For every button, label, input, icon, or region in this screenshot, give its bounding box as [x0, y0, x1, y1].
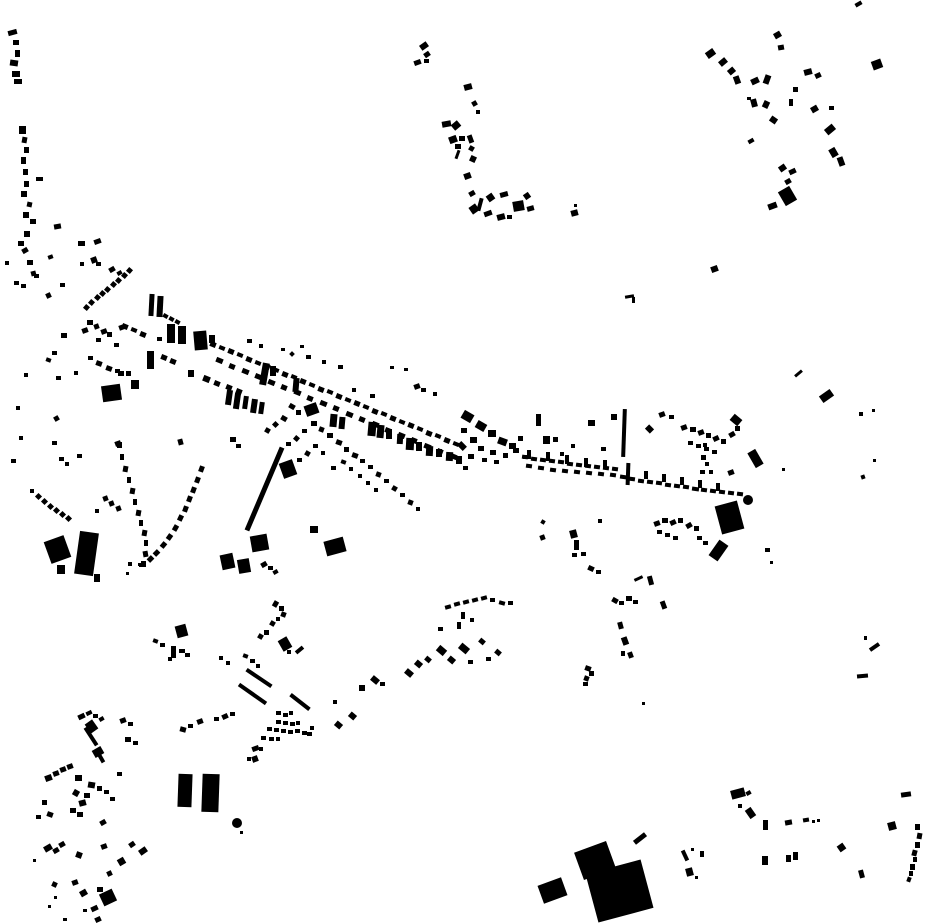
building-footprint [463, 466, 468, 470]
building-footprint [619, 601, 624, 605]
building-footprint [762, 100, 770, 109]
building-footprint [349, 467, 353, 471]
building-footprint [128, 722, 133, 726]
building-footprint [688, 441, 693, 445]
building-footprint [22, 137, 28, 144]
building-footprint [735, 426, 740, 431]
building-footprint [47, 254, 53, 259]
building-footprint [178, 326, 186, 344]
building-footprint [486, 193, 496, 203]
building-footprint [21, 247, 29, 254]
building-footprint [737, 492, 743, 497]
building-footprint [574, 540, 579, 550]
building-footprint [95, 509, 99, 513]
building-footprint [290, 722, 295, 726]
building-footprint [456, 456, 462, 464]
building-footprint [96, 338, 101, 342]
building-footprint [765, 548, 770, 552]
building-footprint [814, 72, 822, 79]
building-footprint [169, 358, 176, 365]
building-footprint [139, 520, 143, 526]
building-footprint [19, 436, 23, 440]
building-footprint [560, 452, 564, 456]
building-footprint [57, 565, 65, 574]
building-footprint [696, 444, 701, 448]
building-footprint [250, 534, 270, 553]
building-footprint [338, 365, 343, 369]
building-footprint [869, 642, 880, 652]
building-footprint [513, 448, 519, 453]
building-footprint [43, 843, 53, 852]
building-footprint [214, 717, 219, 721]
building-footprint [133, 741, 138, 745]
building-footprint [83, 304, 90, 311]
building-footprint [538, 877, 568, 903]
building-footprint [215, 357, 223, 364]
building-footprint [226, 661, 230, 665]
building-footprint [196, 718, 203, 725]
building-footprint [296, 410, 301, 415]
building-footprint [864, 636, 867, 640]
building-footprint [90, 905, 98, 912]
building-footprint [370, 675, 380, 685]
building-footprint [784, 178, 792, 185]
building-footprint [188, 370, 194, 377]
building-footprint [71, 879, 78, 886]
building-footprint [19, 126, 26, 134]
building-footprint [335, 393, 342, 400]
building-footprint [351, 452, 358, 459]
building-footprint [24, 181, 29, 187]
building-footprint [276, 737, 280, 741]
building-footprint [598, 519, 602, 523]
building-footprint [36, 815, 41, 819]
building-footprint [750, 98, 758, 107]
building-footprint [97, 887, 103, 892]
building-footprint [376, 425, 384, 439]
building-footprint [42, 800, 47, 805]
building-footprint [859, 412, 863, 416]
building-footprint [335, 439, 342, 446]
building-footprint [23, 212, 29, 218]
building-footprint [321, 451, 325, 455]
building-footprint [166, 533, 174, 541]
building-footprint [873, 459, 876, 462]
building-footprint [70, 808, 76, 813]
building-footprint [695, 876, 698, 879]
building-footprint [540, 519, 545, 524]
building-footprint [359, 685, 365, 691]
building-footprint [698, 480, 702, 488]
building-footprint [872, 409, 875, 412]
building-footprint [572, 553, 577, 557]
building-footprint [77, 713, 85, 720]
building-footprint [198, 465, 205, 472]
building-footprint [703, 443, 707, 447]
building-footprint [27, 260, 33, 265]
building-footprint [478, 446, 484, 451]
building-footprint [626, 463, 631, 485]
building-footprint [268, 566, 273, 570]
building-footprint [23, 169, 28, 175]
building-footprint [295, 729, 300, 733]
building-footprint [160, 354, 167, 361]
building-footprint [854, 1, 862, 8]
building-footprint [293, 435, 300, 442]
building-footprint [598, 472, 604, 477]
building-footprint [261, 736, 266, 740]
building-footprint [917, 833, 923, 840]
building-footprint [139, 564, 142, 567]
building-footprint [54, 896, 57, 899]
building-footprint [96, 262, 101, 266]
building-footprint [77, 812, 83, 817]
building-footprint [80, 262, 84, 266]
building-footprint [733, 75, 741, 85]
building-footprint [423, 51, 431, 59]
building-footprint [306, 395, 313, 402]
building-footprint [565, 455, 569, 464]
building-footprint [391, 485, 398, 492]
building-footprint [538, 466, 544, 471]
building-footprint [360, 459, 365, 463]
building-footprint [690, 427, 696, 432]
building-footprint [16, 406, 20, 410]
building-footprint [236, 444, 241, 448]
building-footprint [634, 575, 643, 582]
building-footprint [117, 772, 122, 776]
building-footprint [915, 824, 920, 830]
building-footprint [126, 572, 129, 575]
building-footprint [27, 202, 33, 208]
building-footprint [130, 327, 137, 333]
building-footprint [34, 274, 39, 278]
building-footprint [910, 864, 915, 870]
building-footprint [461, 428, 467, 433]
building-footprint [344, 447, 349, 452]
building-footprint [416, 507, 420, 511]
building-footprint [812, 820, 815, 823]
building-footprint [276, 711, 281, 715]
building-footprint [250, 399, 258, 414]
building-footprint [496, 213, 505, 221]
building-footprint [52, 847, 60, 854]
building-footprint [296, 721, 300, 725]
building-footprint [497, 437, 508, 447]
building-footprint [669, 519, 677, 526]
building-footprint [93, 323, 99, 329]
building-footprint [569, 529, 578, 539]
building-footprint [331, 466, 336, 470]
building-footprint [329, 414, 337, 428]
building-footprint [638, 479, 644, 484]
building-footprint [182, 505, 189, 512]
building-footprint [318, 426, 324, 432]
building-footprint [611, 597, 619, 604]
building-footprint [611, 414, 617, 420]
building-footprint [264, 630, 269, 635]
building-footprint [100, 843, 107, 850]
building-footprint [114, 343, 119, 347]
building-footprint [662, 474, 666, 482]
building-footprint [340, 459, 346, 464]
building-footprint [230, 712, 235, 716]
building-footprint [747, 138, 754, 144]
building-footprint [18, 241, 24, 246]
building-footprint [773, 31, 782, 40]
building-footprint [584, 458, 588, 467]
building-footprint [472, 597, 479, 602]
building-footprint [179, 726, 186, 732]
building-footprint [310, 726, 314, 730]
building-footprint [703, 541, 708, 545]
building-footprint [237, 558, 251, 574]
building-footprint [148, 294, 154, 316]
building-footprint [442, 120, 452, 127]
building-footprint [45, 357, 51, 362]
building-footprint [446, 452, 453, 461]
building-footprint [527, 450, 531, 459]
building-footprint [470, 618, 474, 622]
building-footprint [769, 116, 778, 125]
building-footprint [153, 549, 161, 557]
building-footprint [461, 612, 465, 619]
building-footprint [539, 534, 545, 540]
building-footprint [727, 66, 736, 75]
building-footprint [289, 711, 293, 715]
building-footprint [459, 136, 465, 141]
building-footprint [685, 522, 693, 529]
building-footprint [348, 711, 357, 720]
building-footprint [8, 29, 18, 36]
building-footprint [712, 435, 720, 442]
building-footprint [778, 45, 785, 51]
building-footprint [728, 491, 734, 496]
building-footprint [258, 402, 265, 415]
building-footprint [705, 48, 716, 59]
building-footprint [332, 405, 339, 412]
building-footprint [589, 671, 594, 676]
building-footprint [747, 449, 763, 468]
building-footprint [30, 219, 36, 224]
building-footprint [721, 439, 726, 444]
building-footprint [174, 319, 180, 325]
building-footprint [307, 732, 312, 736]
building-footprint [526, 464, 532, 469]
building-footprint [490, 598, 495, 602]
building-footprint [250, 659, 255, 663]
building-footprint [85, 710, 92, 716]
building-footprint [400, 493, 405, 497]
building-footprint [523, 192, 531, 200]
building-footprint [308, 382, 315, 388]
building-footprint [470, 437, 477, 443]
building-footprint [829, 106, 834, 110]
building-footprint [48, 905, 51, 908]
building-footprint [59, 766, 66, 773]
building-footprint [700, 470, 705, 474]
building-footprint [310, 526, 318, 533]
building-footprint [344, 397, 351, 403]
building-footprint [371, 408, 378, 415]
building-footprint [61, 333, 67, 338]
building-footprint [272, 421, 279, 428]
building-footprint [131, 380, 139, 389]
building-footprint [157, 337, 162, 341]
building-footprint [289, 351, 295, 357]
building-footprint [673, 536, 678, 540]
building-footprint [63, 918, 67, 921]
building-footprint [788, 168, 796, 175]
building-footprint [177, 514, 184, 522]
building-footprint [136, 510, 142, 517]
building-footprint [709, 540, 729, 562]
building-footprint [345, 411, 353, 418]
building-footprint [121, 272, 128, 279]
building-footprint [669, 415, 674, 419]
building-footprint [610, 473, 616, 478]
building-footprint [421, 388, 426, 392]
building-footprint [457, 622, 461, 629]
building-footprint [280, 611, 286, 617]
building-footprint [302, 429, 307, 433]
building-footprint [617, 621, 624, 629]
building-footprint [793, 852, 798, 860]
building-footprint [99, 819, 107, 826]
building-footprint [218, 345, 225, 351]
building-footprint [238, 683, 267, 705]
building-footprint [499, 191, 508, 198]
building-footprint [334, 720, 343, 729]
building-footprint [327, 433, 333, 438]
building-footprint [128, 841, 136, 849]
building-footprint [353, 400, 360, 407]
building-footprint [84, 793, 90, 798]
building-footprint [283, 713, 288, 717]
building-footprint [323, 537, 346, 557]
building-footprint-map [0, 0, 930, 924]
building-footprint [292, 378, 299, 392]
building-footprint [413, 59, 421, 66]
building-footprint [201, 774, 219, 813]
building-footprint [160, 541, 168, 549]
building-footprint [375, 471, 381, 477]
building-footprint [115, 505, 121, 511]
building-footprint [469, 155, 477, 163]
building-footprint [24, 147, 29, 153]
building-footprint [78, 241, 85, 246]
building-footprint [419, 41, 429, 51]
building-footprint [416, 426, 423, 432]
building-footprint [227, 348, 234, 355]
building-footprint [12, 71, 20, 77]
building-footprint [41, 498, 48, 505]
building-footprint [88, 356, 93, 360]
building-footprint [762, 856, 768, 865]
building-footprint [367, 422, 376, 437]
building-footprint [424, 656, 432, 664]
building-footprint [257, 633, 264, 640]
building-footprint [475, 420, 488, 432]
building-footprint [259, 747, 263, 751]
building-footprint [447, 655, 456, 664]
building-footprint [887, 821, 897, 831]
building-footprint [778, 164, 787, 173]
building-footprint [507, 215, 512, 219]
building-footprint [177, 774, 192, 807]
building-footprint [553, 437, 558, 442]
building-footprint [413, 383, 420, 390]
building-footprint [259, 344, 263, 348]
building-footprint [152, 638, 158, 643]
building-footprint [488, 430, 496, 437]
building-footprint [526, 205, 534, 212]
building-footprint [828, 147, 839, 158]
building-footprint [683, 485, 689, 490]
building-footprint [88, 299, 95, 306]
building-footprint [414, 659, 423, 668]
building-footprint [104, 790, 109, 794]
building-footprint [225, 390, 233, 406]
building-footprint [467, 134, 474, 143]
building-footprint [123, 466, 129, 473]
building-footprint [326, 389, 333, 395]
building-footprint [389, 415, 396, 422]
building-footprint [75, 851, 83, 859]
building-footprint [697, 429, 704, 436]
building-footprint [588, 420, 595, 426]
building-footprint [251, 755, 259, 763]
building-footprint [256, 664, 260, 668]
building-footprint [384, 479, 389, 483]
building-footprint [247, 339, 252, 343]
building-footprint [230, 437, 236, 442]
building-footprint [463, 83, 472, 91]
building-footprint [13, 40, 19, 45]
building-footprint [267, 727, 272, 731]
building-footprint [436, 645, 447, 656]
building-footprint [245, 447, 285, 532]
building-footprint [97, 786, 102, 791]
building-footprint [245, 668, 272, 688]
building-footprint [390, 366, 394, 369]
building-footprint [128, 562, 132, 566]
building-footprint [468, 145, 475, 152]
building-footprint [546, 452, 550, 461]
building-footprint [333, 700, 337, 704]
building-footprint [911, 849, 917, 856]
building-footprint [33, 859, 36, 862]
building-footprint [398, 419, 405, 425]
building-footprint [665, 483, 671, 488]
building-footprint [858, 869, 865, 878]
building-footprint [30, 489, 34, 493]
building-footprint [299, 378, 306, 385]
building-footprint [380, 682, 385, 686]
building-footprint [139, 331, 146, 338]
building-footprint [97, 753, 105, 764]
building-footprint [186, 495, 193, 502]
building-footprint [745, 807, 756, 819]
building-footprint [681, 850, 689, 862]
building-footprint [65, 515, 72, 522]
building-footprint [269, 620, 276, 627]
building-footprint [177, 438, 183, 445]
building-footprint [74, 531, 99, 576]
building-footprint [304, 450, 311, 457]
building-footprint [81, 327, 88, 334]
building-footprint [108, 266, 116, 273]
